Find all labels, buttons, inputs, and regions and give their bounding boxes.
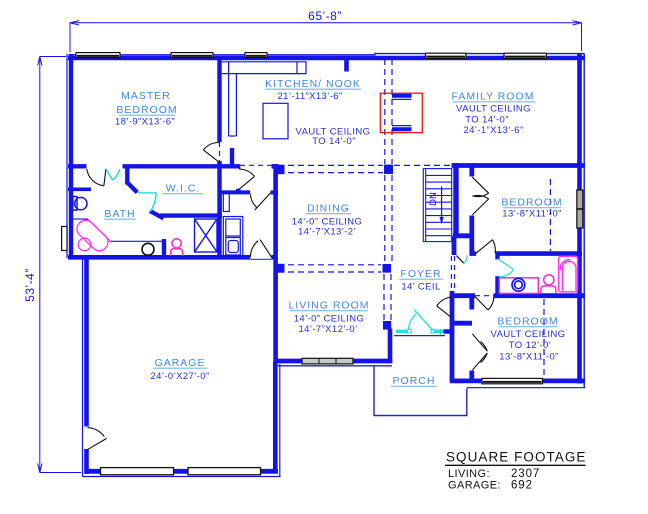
svg-text:21’-11”X13’-6”: 21’-11”X13’-6” <box>277 91 342 102</box>
svg-text:14’-7”X12’-0’: 14’-7”X12’-0’ <box>298 324 357 335</box>
svg-text:13’-8”X11’-0”: 13’-8”X11’-0” <box>499 352 558 363</box>
svg-text:TO 12’-0’: TO 12’-0’ <box>509 340 552 351</box>
svg-text:2307: 2307 <box>511 468 540 480</box>
svg-text:LIVING ROOM: LIVING ROOM <box>288 300 369 312</box>
svg-text:BEDROOM: BEDROOM <box>116 104 177 116</box>
svg-text:GARAGE: GARAGE <box>155 357 206 369</box>
svg-text:LIVING:: LIVING: <box>448 468 490 480</box>
svg-text:GARAGE:: GARAGE: <box>448 480 501 492</box>
svg-text:14’-7’X13’-2’: 14’-7’X13’-2’ <box>298 227 356 238</box>
svg-text:DINING: DINING <box>307 203 350 215</box>
svg-text:BEDROOM: BEDROOM <box>501 197 562 209</box>
svg-text:PORCH: PORCH <box>393 375 436 387</box>
svg-text:53’-4”: 53’-4” <box>23 268 37 302</box>
svg-text:24’-1”X13’-6”: 24’-1”X13’-6” <box>463 125 523 136</box>
svg-text:65’-8”: 65’-8” <box>308 9 342 23</box>
svg-text:14’ CEIL: 14’ CEIL <box>401 281 440 292</box>
svg-text:BATH: BATH <box>104 208 135 220</box>
svg-text:13’-8”X11’-0”: 13’-8”X11’-0” <box>502 209 561 220</box>
svg-text:FOYER: FOYER <box>400 268 441 280</box>
svg-text:18’-9”X13’-6”: 18’-9”X13’-6” <box>115 117 175 128</box>
svg-text:VAULT CEILING: VAULT CEILING <box>456 104 531 115</box>
svg-text:14’-0” CEILING: 14’-0” CEILING <box>294 314 365 325</box>
svg-text:DN: DN <box>428 192 439 206</box>
svg-text:W.I.C.: W.I.C. <box>166 183 201 195</box>
svg-text:TO 14’-0”: TO 14’-0” <box>465 114 509 125</box>
svg-text:TO 14’-0”: TO 14’-0” <box>312 136 356 147</box>
svg-text:692: 692 <box>511 480 533 492</box>
svg-text:VAULT CEILING: VAULT CEILING <box>491 329 566 340</box>
svg-text:FAMILY ROOM: FAMILY ROOM <box>452 91 535 103</box>
svg-text:24’-0’X27’-0”: 24’-0’X27’-0” <box>150 371 209 382</box>
svg-text:MASTER: MASTER <box>121 90 171 102</box>
svg-text:KITCHEN/ NOOK: KITCHEN/ NOOK <box>265 78 361 90</box>
svg-text:SQUARE FOOTAGE: SQUARE FOOTAGE <box>446 450 586 465</box>
svg-text:BEDROOM: BEDROOM <box>497 316 558 328</box>
